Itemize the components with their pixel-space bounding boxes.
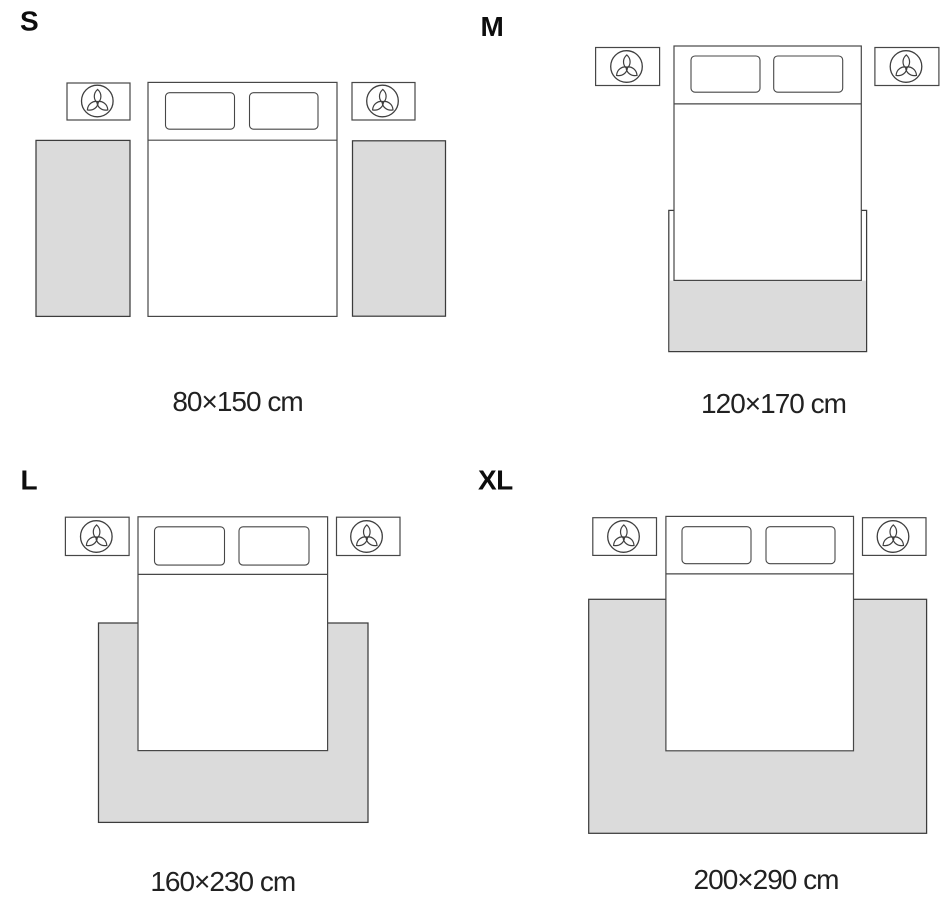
svg-text:S: S bbox=[20, 5, 39, 36]
svg-text:80×150 cm: 80×150 cm bbox=[172, 386, 302, 417]
svg-text:XL: XL bbox=[478, 465, 513, 496]
svg-text:120×170 cm: 120×170 cm bbox=[701, 388, 846, 419]
svg-text:M: M bbox=[481, 11, 504, 42]
svg-text:L: L bbox=[21, 465, 38, 496]
svg-text:160×230 cm: 160×230 cm bbox=[150, 866, 295, 897]
svg-text:200×290 cm: 200×290 cm bbox=[694, 864, 839, 895]
